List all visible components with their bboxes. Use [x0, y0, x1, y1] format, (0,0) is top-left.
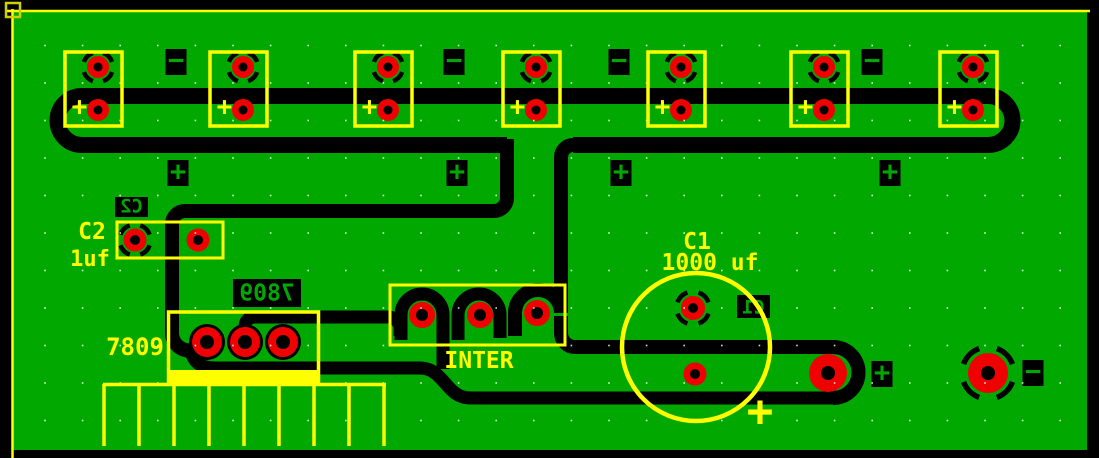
- ground-pad-hole: [981, 366, 995, 380]
- inter-pad2-hole: [474, 309, 486, 321]
- grid-dot: [947, 270, 949, 272]
- grid-dot: [157, 45, 159, 47]
- grid-dot: [759, 120, 761, 122]
- grid-dot: [82, 45, 84, 47]
- grid-dot: [608, 345, 610, 347]
- grid-dot: [195, 270, 197, 272]
- polarity-minus-glyph: −: [611, 45, 627, 76]
- grid-dot: [1022, 195, 1024, 197]
- grid-dot: [721, 420, 723, 422]
- grid-dot: [270, 195, 272, 197]
- grid-dot: [947, 157, 949, 159]
- grid-dot: [1022, 270, 1024, 272]
- grid-dot: [420, 120, 422, 122]
- grid-dot: [44, 195, 46, 197]
- inter-pad3-hole: [531, 307, 543, 319]
- grid-dot: [307, 307, 309, 309]
- grid-dot: [796, 270, 798, 272]
- grid-dot: [721, 307, 723, 309]
- grid-dot: [420, 382, 422, 384]
- grid-dot: [82, 382, 84, 384]
- silk-regulator-tab[interactable]: [167, 370, 320, 384]
- grid-dot: [495, 82, 497, 84]
- grid-dot: [82, 195, 84, 197]
- grid-dot: [345, 420, 347, 422]
- grid-dot: [871, 232, 873, 234]
- label-c1-polarity[interactable]: +: [747, 386, 774, 437]
- grid-dot: [721, 120, 723, 122]
- grid-dot: [420, 420, 422, 422]
- grid-dot: [1059, 270, 1061, 272]
- grid-dot: [871, 307, 873, 309]
- grid-dot: [157, 420, 159, 422]
- grid-dot: [571, 382, 573, 384]
- label-c2-value[interactable]: 1uf: [70, 247, 110, 272]
- battery6-pos-pad-hole: [820, 106, 829, 115]
- grid-dot: [232, 195, 234, 197]
- polarity-plus-glyph: +: [170, 156, 186, 187]
- grid-dot: [571, 82, 573, 84]
- grid-dot: [947, 420, 949, 422]
- grid-dot: [646, 45, 648, 47]
- grid-dot: [495, 382, 497, 384]
- grid-dot: [420, 82, 422, 84]
- grid-dot: [119, 157, 121, 159]
- battery1-neg-pad-hole: [94, 63, 103, 72]
- grid-dot: [345, 307, 347, 309]
- inter-pad1-hole: [416, 309, 428, 321]
- grid-dot: [420, 195, 422, 197]
- grid-dot: [1022, 232, 1024, 234]
- grid-dot: [1059, 157, 1061, 159]
- grid-dot: [683, 82, 685, 84]
- grid-dot: [270, 120, 272, 122]
- grid-dot: [345, 232, 347, 234]
- grid-dot: [157, 120, 159, 122]
- grid-dot: [984, 232, 986, 234]
- grid-dot: [871, 382, 873, 384]
- grid-dot: [571, 232, 573, 234]
- polarity-minus-glyph: −: [168, 45, 184, 76]
- pcb-canvas: C2 7809 C1 −−−−+++++− C2 1uf 7809 INTER …: [0, 0, 1099, 458]
- grid-dot: [82, 82, 84, 84]
- grid-dot: [195, 195, 197, 197]
- grid-dot: [383, 82, 385, 84]
- grid-dot: [759, 232, 761, 234]
- grid-dot: [44, 345, 46, 347]
- grid-dot: [571, 420, 573, 422]
- grid-dot: [307, 82, 309, 84]
- grid-dot: [44, 82, 46, 84]
- battery1-plus-mark: +: [72, 92, 88, 122]
- grid-dot: [909, 195, 911, 197]
- grid-dot: [984, 307, 986, 309]
- grid-dot: [759, 270, 761, 272]
- grid-dot: [947, 45, 949, 47]
- grid-dot: [1059, 232, 1061, 234]
- grid-dot: [1022, 45, 1024, 47]
- grid-dot: [458, 120, 460, 122]
- grid-dot: [195, 157, 197, 159]
- grid-dot: [345, 82, 347, 84]
- mirrored-label-7809[interactable]: 7809: [239, 281, 294, 307]
- grid-dot: [796, 345, 798, 347]
- grid-dot: [759, 45, 761, 47]
- grid-dot: [1022, 120, 1024, 122]
- grid-dot: [44, 382, 46, 384]
- grid-dot: [608, 307, 610, 309]
- grid-dot: [157, 307, 159, 309]
- grid-dot: [1059, 382, 1061, 384]
- grid-dot: [646, 382, 648, 384]
- grid-dot: [608, 45, 610, 47]
- grid-dot: [495, 120, 497, 122]
- battery2-plus-mark: +: [217, 92, 233, 122]
- grid-dot: [383, 45, 385, 47]
- grid-dot: [195, 45, 197, 47]
- grid-dot: [44, 420, 46, 422]
- grid-dot: [1059, 45, 1061, 47]
- grid-dot: [383, 270, 385, 272]
- grid-dot: [909, 270, 911, 272]
- grid-dot: [796, 307, 798, 309]
- grid-dot: [571, 307, 573, 309]
- grid-dot: [759, 195, 761, 197]
- grid-dot: [345, 45, 347, 47]
- battery2-pos-pad-hole: [239, 106, 248, 115]
- grid-dot: [1022, 82, 1024, 84]
- grid-dot: [909, 157, 911, 159]
- grid-dot: [307, 195, 309, 197]
- grid-dot: [1059, 420, 1061, 422]
- grid-dot: [683, 345, 685, 347]
- grid-dot: [307, 157, 309, 159]
- polarity-plus-glyph: +: [449, 156, 465, 187]
- grid-dot: [871, 270, 873, 272]
- battery4-pos-pad-hole: [532, 106, 541, 115]
- grid-dot: [871, 420, 873, 422]
- grid-dot: [383, 157, 385, 159]
- regulator-pad1-hole: [200, 335, 214, 349]
- grid-dot: [533, 420, 535, 422]
- grid-dot: [796, 157, 798, 159]
- label-regulator-value[interactable]: 7809: [106, 333, 164, 361]
- grid-dot: [1022, 345, 1024, 347]
- grid-dot: [345, 345, 347, 347]
- grid-dot: [984, 82, 986, 84]
- grid-dot: [1059, 120, 1061, 122]
- grid-dot: [571, 270, 573, 272]
- grid-dot: [345, 270, 347, 272]
- label-c2-ref[interactable]: C2: [78, 219, 106, 245]
- label-inter[interactable]: INTER: [444, 348, 513, 374]
- grid-dot: [608, 382, 610, 384]
- grid-dot: [195, 120, 197, 122]
- grid-dot: [495, 270, 497, 272]
- grid-dot: [383, 345, 385, 347]
- grid-dot: [383, 120, 385, 122]
- grid-dot: [608, 270, 610, 272]
- c1-pad1-hole: [688, 303, 698, 313]
- grid-dot: [608, 420, 610, 422]
- grid-dot: [683, 382, 685, 384]
- polarity-plus-glyph: +: [874, 357, 890, 388]
- grid-dot: [420, 270, 422, 272]
- polarity-plus-glyph: +: [613, 156, 629, 187]
- grid-dot: [646, 307, 648, 309]
- c2-pad1-hole: [130, 235, 140, 245]
- grid-dot: [495, 157, 497, 159]
- grid-dot: [307, 270, 309, 272]
- grid-dot: [157, 232, 159, 234]
- grid-dot: [495, 195, 497, 197]
- grid-dot: [571, 120, 573, 122]
- grid-dot: [834, 382, 836, 384]
- grid-dot: [721, 382, 723, 384]
- grid-dot: [533, 195, 535, 197]
- grid-dot: [608, 232, 610, 234]
- battery2-neg-pad-hole: [239, 63, 248, 72]
- grid-dot: [119, 232, 121, 234]
- grid-dot: [571, 345, 573, 347]
- grid-dot: [721, 157, 723, 159]
- grid-dot: [232, 270, 234, 272]
- polarity-minus-glyph: −: [864, 45, 880, 76]
- grid-dot: [683, 120, 685, 122]
- grid-dot: [119, 45, 121, 47]
- grid-dot: [195, 420, 197, 422]
- grid-dot: [157, 270, 159, 272]
- grid-dot: [834, 420, 836, 422]
- grid-dot: [646, 195, 648, 197]
- grid-dot: [232, 120, 234, 122]
- grid-dot: [909, 382, 911, 384]
- grid-dot: [909, 232, 911, 234]
- grid-dot: [608, 120, 610, 122]
- grid-dot: [420, 45, 422, 47]
- grid-dot: [984, 382, 986, 384]
- regulator-pad3-hole: [276, 335, 290, 349]
- grid-dot: [383, 195, 385, 197]
- grid-dot: [871, 195, 873, 197]
- grid-dot: [834, 157, 836, 159]
- mirrored-label-c2[interactable]: C2: [120, 196, 143, 218]
- grid-dot: [307, 232, 309, 234]
- grid-dot: [646, 345, 648, 347]
- grid-dot: [834, 270, 836, 272]
- grid-dot: [533, 45, 535, 47]
- grid-dot: [458, 232, 460, 234]
- grid-dot: [1059, 345, 1061, 347]
- grid-dot: [646, 270, 648, 272]
- grid-dot: [909, 82, 911, 84]
- grid-dot: [82, 345, 84, 347]
- grid-dot: [871, 82, 873, 84]
- grid-dot: [683, 157, 685, 159]
- grid-dot: [533, 307, 535, 309]
- grid-dot: [270, 45, 272, 47]
- grid-dot: [495, 45, 497, 47]
- grid-dot: [420, 307, 422, 309]
- battery5-pos-pad-hole: [677, 106, 686, 115]
- grid-dot: [270, 270, 272, 272]
- grid-dot: [1022, 382, 1024, 384]
- grid-dot: [947, 195, 949, 197]
- grid-dot: [646, 157, 648, 159]
- grid-dot: [646, 420, 648, 422]
- label-c1-value[interactable]: 1000 uf: [662, 250, 759, 276]
- grid-dot: [383, 232, 385, 234]
- grid-dot: [458, 307, 460, 309]
- grid-dot: [796, 82, 798, 84]
- grid-dot: [44, 157, 46, 159]
- grid-dot: [458, 82, 460, 84]
- grid-dot: [533, 232, 535, 234]
- grid-dot: [571, 45, 573, 47]
- grid-dot: [195, 232, 197, 234]
- grid-dot: [759, 82, 761, 84]
- battery6-plus-mark: +: [798, 92, 814, 122]
- grid-dot: [984, 45, 986, 47]
- battery7-plus-mark: +: [947, 92, 963, 122]
- grid-dot: [533, 157, 535, 159]
- grid-dot: [533, 382, 535, 384]
- grid-dot: [834, 307, 836, 309]
- grid-dot: [232, 420, 234, 422]
- grid-dot: [721, 345, 723, 347]
- grid-dot: [533, 82, 535, 84]
- grid-dot: [1059, 82, 1061, 84]
- battery1-pos-pad-hole: [94, 106, 103, 115]
- grid-dot: [759, 157, 761, 159]
- grid-dot: [420, 232, 422, 234]
- c1-pad2-hole: [690, 369, 700, 379]
- battery3-plus-mark: +: [362, 92, 378, 122]
- grid-dot: [721, 82, 723, 84]
- grid-dot: [195, 345, 197, 347]
- grid-dot: [984, 195, 986, 197]
- grid-dot: [721, 45, 723, 47]
- polarity-plus-glyph: +: [882, 156, 898, 187]
- grid-dot: [834, 345, 836, 347]
- grid-dot: [571, 195, 573, 197]
- grid-dot: [608, 195, 610, 197]
- grid-dot: [608, 157, 610, 159]
- grid-dot: [307, 45, 309, 47]
- grid-dot: [232, 157, 234, 159]
- grid-dot: [683, 45, 685, 47]
- grid-dot: [909, 345, 911, 347]
- grid-dot: [345, 195, 347, 197]
- regulator-pad2-hole: [238, 335, 252, 349]
- grid-dot: [759, 345, 761, 347]
- grid-dot: [984, 345, 986, 347]
- grid-dot: [270, 157, 272, 159]
- pcb-drawing: C2 7809 C1 −−−−+++++− C2 1uf 7809 INTER …: [0, 0, 1099, 458]
- battery3-pos-pad-hole: [384, 106, 393, 115]
- grid-dot: [533, 270, 535, 272]
- battery5-plus-mark: +: [655, 92, 671, 122]
- battery7-neg-pad-hole: [969, 63, 978, 72]
- grid-dot: [157, 157, 159, 159]
- battery4-neg-pad-hole: [532, 63, 541, 72]
- grid-dot: [796, 420, 798, 422]
- grid-dot: [871, 345, 873, 347]
- grid-dot: [195, 307, 197, 309]
- grid-dot: [796, 382, 798, 384]
- grid-dot: [307, 120, 309, 122]
- grid-dot: [909, 420, 911, 422]
- battery5-neg-pad-hole: [677, 63, 686, 72]
- grid-dot: [909, 45, 911, 47]
- grid-dot: [119, 307, 121, 309]
- grid-dot: [44, 120, 46, 122]
- grid-dot: [721, 232, 723, 234]
- grid-dot: [834, 45, 836, 47]
- grid-dot: [1022, 157, 1024, 159]
- grid-dot: [1059, 195, 1061, 197]
- grid-dot: [721, 195, 723, 197]
- grid-dot: [157, 195, 159, 197]
- grid-dot: [458, 195, 460, 197]
- grid-dot: [195, 82, 197, 84]
- grid-dot: [909, 307, 911, 309]
- polarity-minus-glyph: −: [446, 45, 462, 76]
- grid-dot: [44, 270, 46, 272]
- grid-dot: [984, 420, 986, 422]
- grid-dot: [495, 307, 497, 309]
- grid-dot: [571, 157, 573, 159]
- grid-dot: [232, 307, 234, 309]
- grid-dot: [345, 120, 347, 122]
- polarity-minus-glyph: −: [1025, 356, 1041, 387]
- grid-dot: [1022, 420, 1024, 422]
- grid-dot: [796, 195, 798, 197]
- grid-dot: [947, 382, 949, 384]
- grid-dot: [232, 345, 234, 347]
- grid-dot: [232, 82, 234, 84]
- grid-dot: [871, 120, 873, 122]
- grid-dot: [270, 420, 272, 422]
- grid-dot: [947, 82, 949, 84]
- c2-pad2-hole: [193, 235, 203, 245]
- grid-dot: [533, 120, 535, 122]
- grid-dot: [834, 195, 836, 197]
- grid-dot: [984, 120, 986, 122]
- grid-dot: [495, 420, 497, 422]
- grid-dot: [44, 45, 46, 47]
- grid-dot: [458, 382, 460, 384]
- grid-dot: [947, 232, 949, 234]
- grid-dot: [1059, 307, 1061, 309]
- grid-dot: [82, 157, 84, 159]
- grid-dot: [270, 345, 272, 347]
- battery4-plus-mark: +: [510, 92, 526, 122]
- grid-dot: [420, 157, 422, 159]
- grid-dot: [796, 232, 798, 234]
- grid-dot: [270, 307, 272, 309]
- battery3-neg-pad-hole: [384, 63, 393, 72]
- grid-dot: [984, 157, 986, 159]
- grid-dot: [683, 307, 685, 309]
- grid-dot: [44, 232, 46, 234]
- grid-dot: [796, 45, 798, 47]
- battery7-pos-pad-hole: [969, 106, 978, 115]
- grid-dot: [834, 232, 836, 234]
- grid-dot: [270, 232, 272, 234]
- grid-dot: [119, 420, 121, 422]
- battery6-neg-pad-hole: [820, 63, 829, 72]
